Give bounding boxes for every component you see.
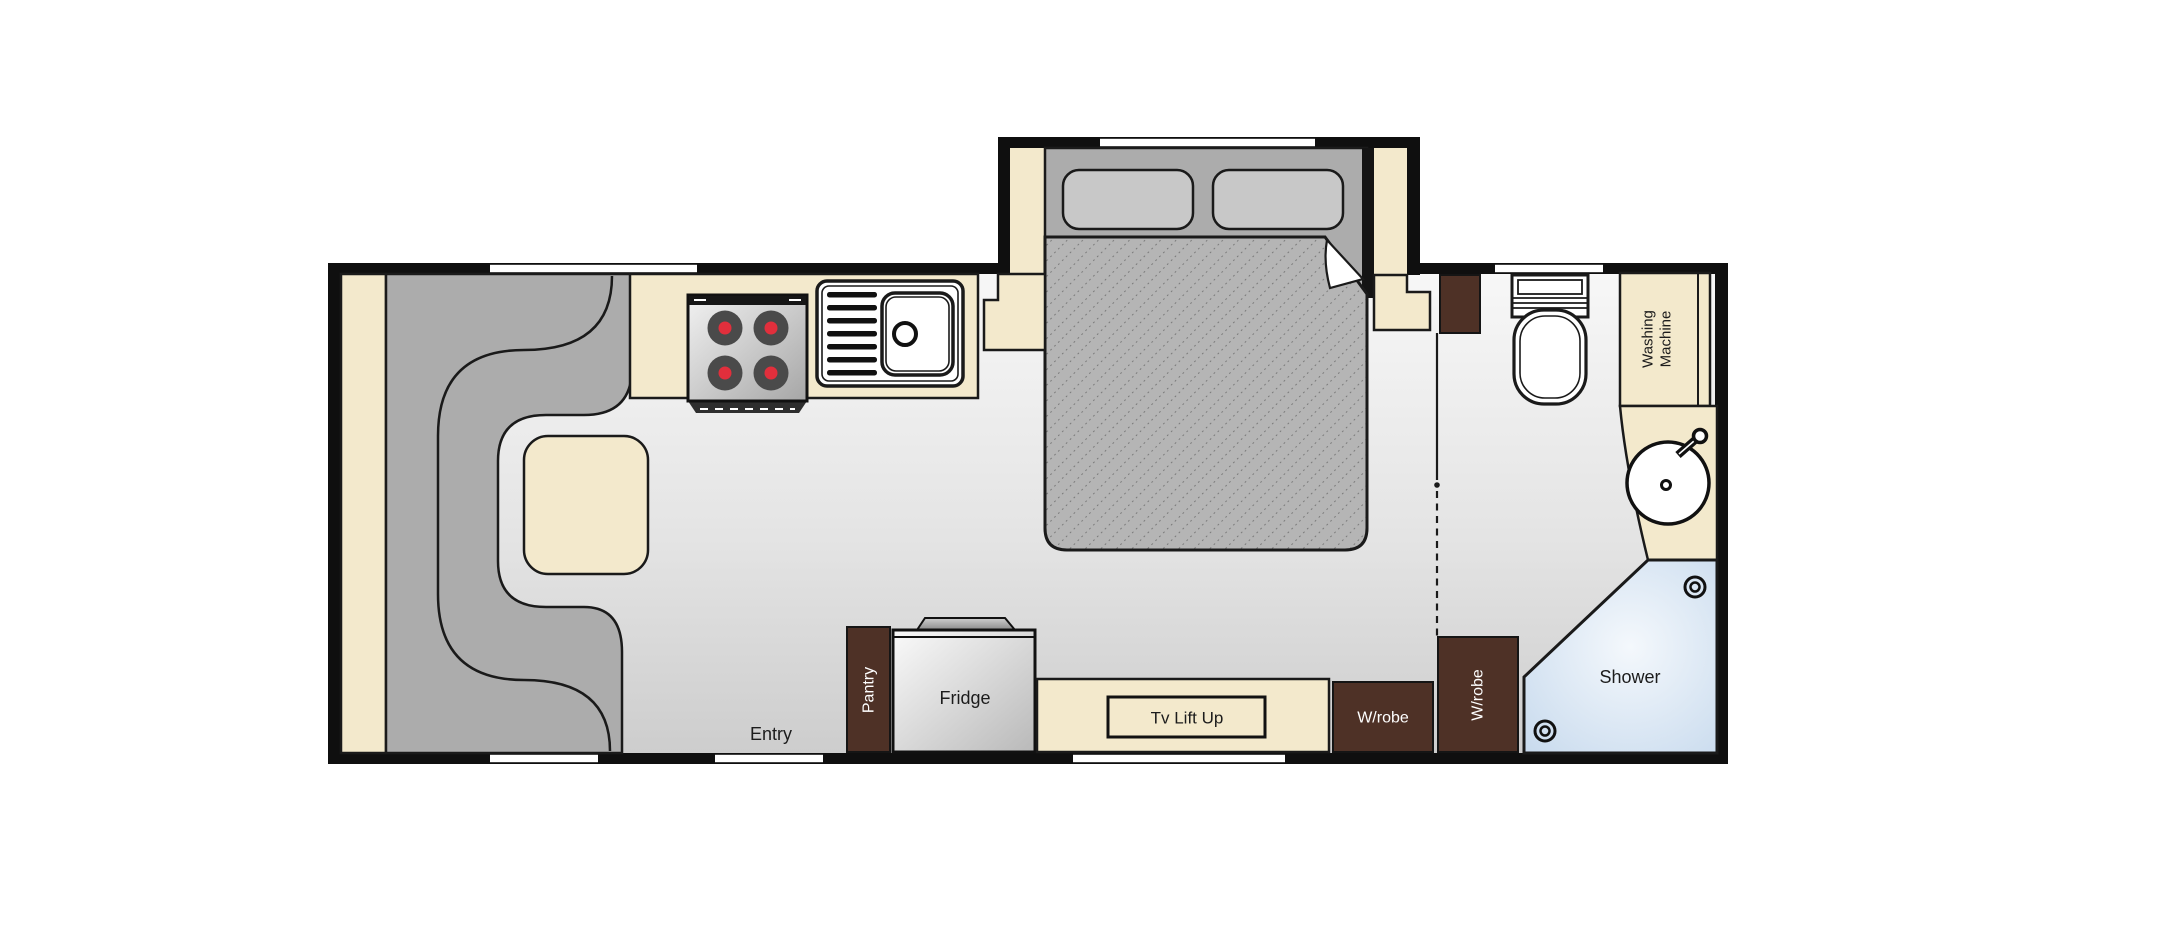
stove-body (688, 295, 807, 401)
toilet-bowl (1514, 310, 1586, 404)
toilet (1512, 275, 1588, 404)
kitchen-sink (817, 281, 963, 386)
fridge-vent (917, 618, 1015, 630)
bathroom-cabinet (1440, 275, 1480, 333)
kitchen (630, 274, 978, 413)
washing-machine-label-line1: Washing (1640, 310, 1657, 368)
fridge: Fridge (893, 618, 1035, 752)
shower-label: Shower (1599, 667, 1660, 687)
basin-drain (1662, 481, 1671, 490)
stove-cooktop (688, 295, 807, 413)
stove-control-strip (689, 296, 806, 305)
island-bed (1045, 148, 1374, 550)
wardrobe-side-label: W/robe (1470, 669, 1487, 721)
bed-side-rail (1362, 148, 1374, 298)
sink-drain-icon (894, 323, 916, 345)
entry-door-opening (715, 755, 823, 762)
window-tv-bottom (1073, 755, 1285, 762)
burner-flame (765, 367, 778, 380)
floor-plan-page: Washing Machine Shower (0, 0, 2167, 931)
floor-plan-canvas: Washing Machine Shower (0, 0, 2167, 931)
washing-machine: Washing Machine (1620, 273, 1710, 406)
window-lounge-bottom (490, 755, 598, 762)
pantry-label: Pantry (861, 667, 878, 713)
front-shelf (341, 274, 386, 753)
fridge-label: Fridge (939, 688, 990, 708)
tv-cabinet: Tv Lift Up (1037, 679, 1329, 752)
mattress (1045, 237, 1367, 550)
burner-flame (719, 367, 732, 380)
window-bathroom (1495, 265, 1603, 272)
washing-machine-label-line2: Machine (1658, 311, 1675, 368)
wall-left (328, 263, 341, 764)
wall-nook-left (998, 137, 1010, 287)
wardrobe-side: W/robe (1438, 637, 1518, 752)
entry-label: Entry (750, 724, 792, 744)
window-front-top (490, 265, 697, 272)
burner-flame (765, 322, 778, 335)
dinette-table (524, 436, 648, 574)
dinette-lounge (341, 274, 648, 753)
wardrobe-rear: W/robe (1333, 682, 1433, 752)
pillow-right (1213, 170, 1343, 229)
pillow-left (1063, 170, 1193, 229)
stove-skirt (688, 401, 807, 413)
tv-lift-label: Tv Lift Up (1151, 709, 1224, 728)
wall-nook-right (1407, 137, 1420, 275)
burner-flame (719, 322, 732, 335)
wardrobe-rear-label: W/robe (1357, 710, 1409, 727)
window-bed-nook (1100, 139, 1315, 146)
